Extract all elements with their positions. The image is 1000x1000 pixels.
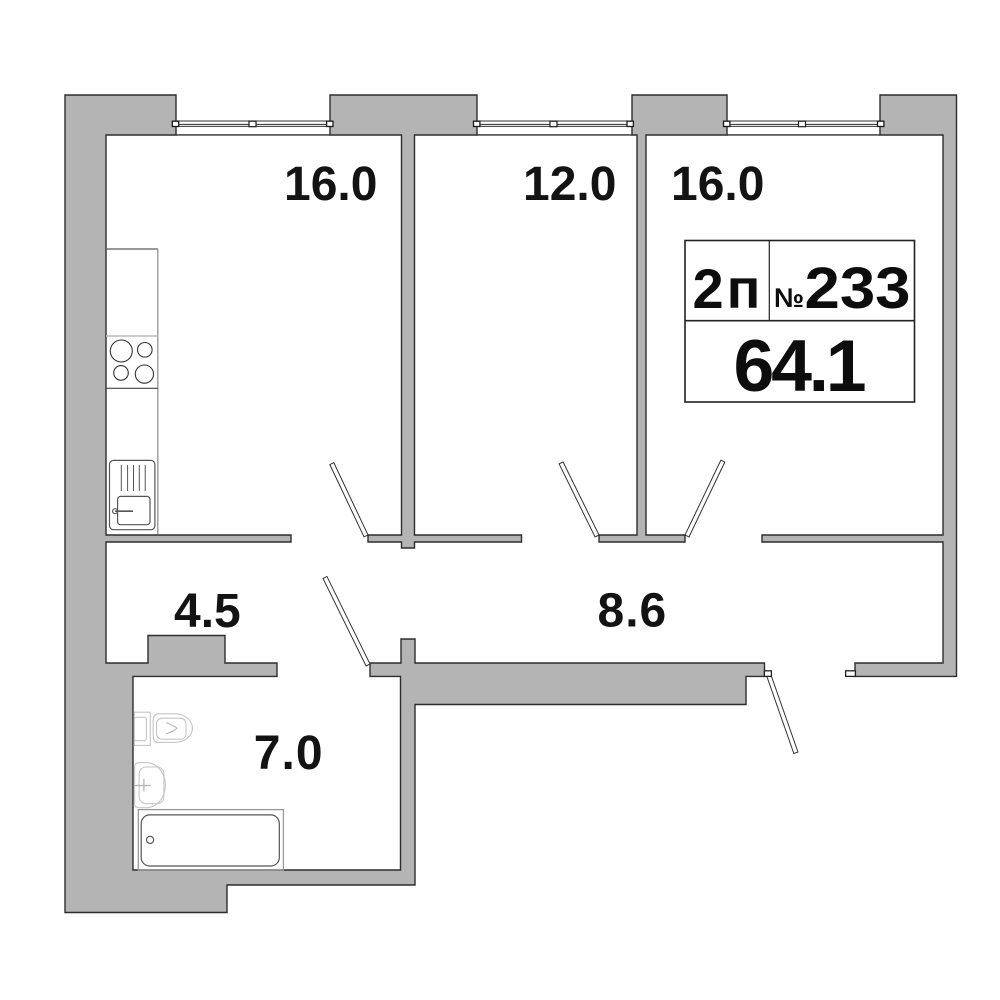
svg-text:№: № bbox=[774, 283, 804, 313]
svg-text:233: 233 bbox=[805, 256, 911, 321]
svg-text:7.0: 7.0 bbox=[254, 727, 324, 780]
svg-text:4.5: 4.5 bbox=[174, 585, 241, 638]
svg-text:12.0: 12.0 bbox=[523, 158, 616, 211]
svg-text:64.1: 64.1 bbox=[734, 324, 865, 407]
svg-text:16.0: 16.0 bbox=[284, 158, 377, 211]
svg-text:2п: 2п bbox=[693, 257, 764, 320]
svg-text:16.0: 16.0 bbox=[671, 158, 764, 211]
svg-text:8.6: 8.6 bbox=[598, 585, 668, 638]
